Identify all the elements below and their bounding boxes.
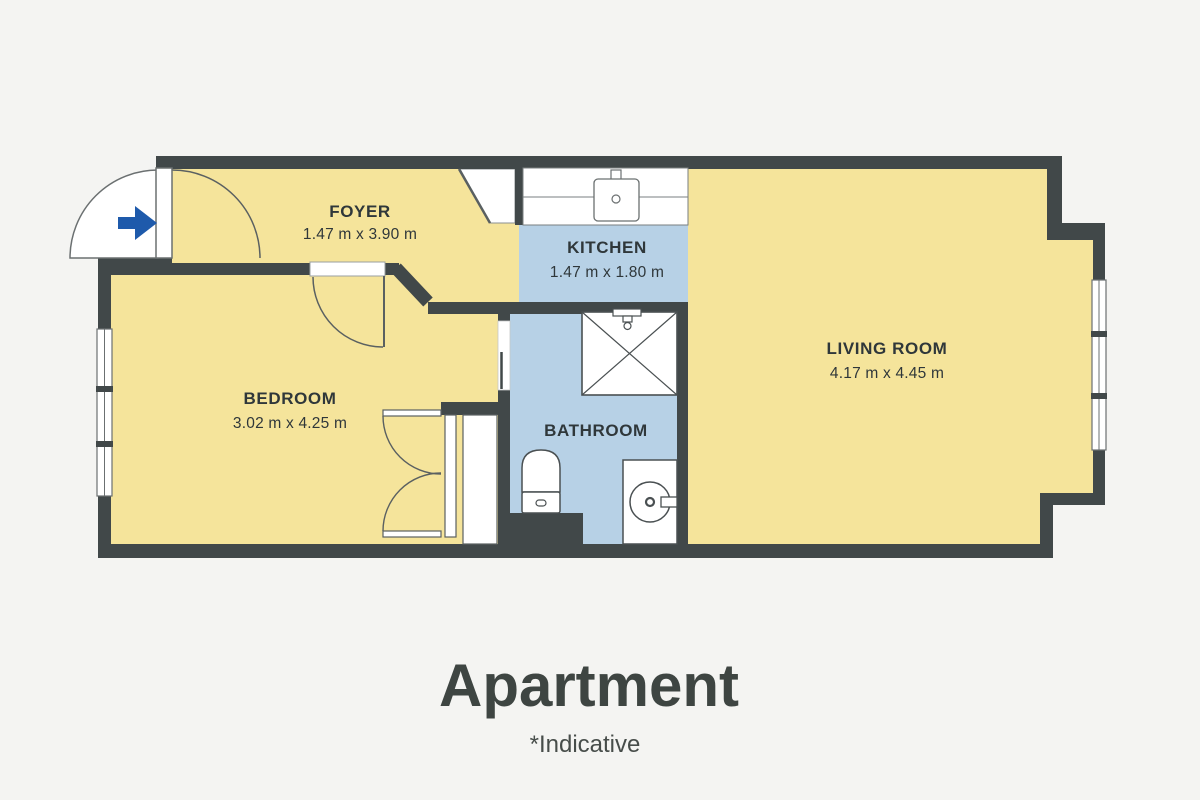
foyer-dims: 1.47 m x 3.90 m xyxy=(303,226,417,243)
shower-icon xyxy=(582,309,677,395)
wall-foyer-bedroom-left xyxy=(111,263,310,275)
bathroom-door-gap xyxy=(498,321,510,390)
wall-top-right-step-h xyxy=(1047,223,1105,240)
wardrobe-panel-left xyxy=(445,415,456,537)
toilet-icon xyxy=(522,450,560,513)
bottom-right-notch xyxy=(1053,505,1107,565)
french-door-leaf-bottom xyxy=(383,531,441,537)
wall-top xyxy=(156,156,1062,169)
entry-door-leaf xyxy=(156,168,172,258)
window-left xyxy=(96,329,113,496)
kitchen-fixtures xyxy=(523,168,688,225)
kitchen-label: KITCHEN xyxy=(567,238,647,257)
kitchen-dims: 1.47 m x 1.80 m xyxy=(550,264,664,281)
indicative-note: *Indicative xyxy=(530,731,641,758)
wall-bathroom-block xyxy=(510,513,583,546)
bathroom-label: BATHROOM xyxy=(544,421,648,440)
bathroom-sliding-door xyxy=(498,321,510,390)
window-right xyxy=(1091,280,1107,450)
french-door-leaf-top xyxy=(383,410,441,416)
bedroom-label: BEDROOM xyxy=(244,389,337,408)
wall-bottom xyxy=(98,544,1053,558)
foyer-label: FOYER xyxy=(329,202,391,221)
wall-left-lower xyxy=(98,496,111,558)
living-room-label: LIVING ROOM xyxy=(827,339,948,358)
living-room-dims: 4.17 m x 4.45 m xyxy=(830,365,944,382)
page-title: Apartment xyxy=(439,652,739,719)
wall-bathroom-right xyxy=(677,302,688,544)
wall-right-upper xyxy=(1093,240,1105,280)
floor-plan: FOYER 1.47 m x 3.90 m KITCHEN 1.47 m x 1… xyxy=(0,0,1200,800)
top-right-notch xyxy=(1062,148,1110,225)
bedroom-dims: 3.02 m x 4.25 m xyxy=(233,415,347,432)
washing-machine-icon xyxy=(623,460,677,544)
wardrobe-panel-right xyxy=(463,415,497,544)
bedroom-door-threshold xyxy=(310,262,385,276)
wall-closet-top xyxy=(441,402,510,415)
